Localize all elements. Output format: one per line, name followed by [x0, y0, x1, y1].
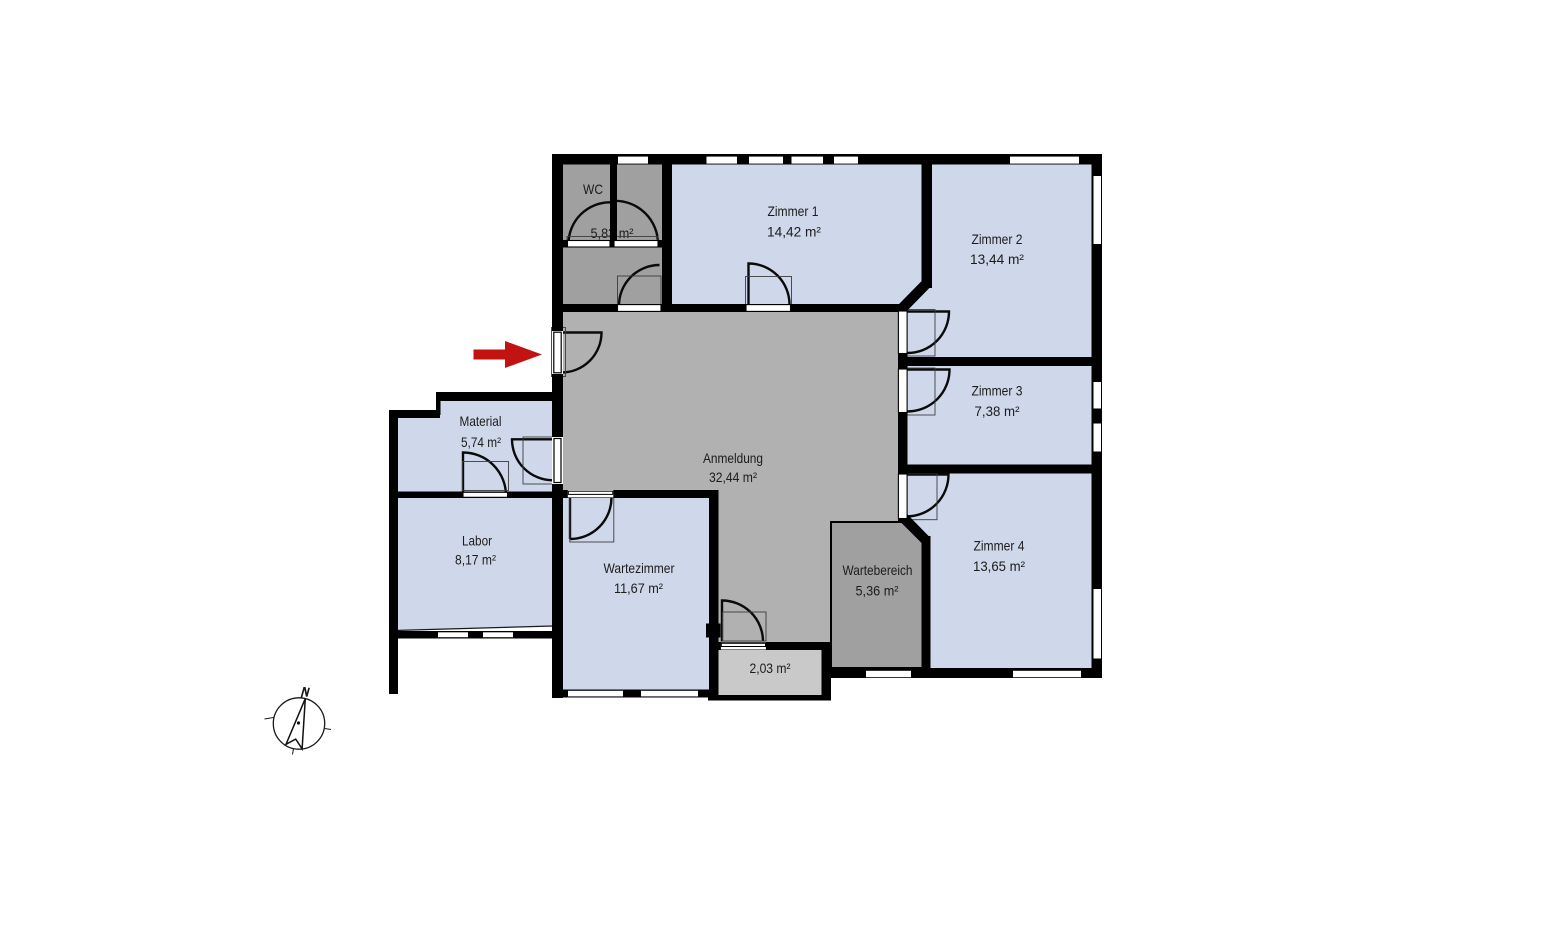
svg-text:Wartebereich: Wartebereich — [843, 563, 913, 578]
svg-text:Zimmer 2: Zimmer 2 — [972, 232, 1023, 247]
svg-text:14,42 m²: 14,42 m² — [767, 225, 821, 240]
svg-text:Zimmer 3: Zimmer 3 — [972, 384, 1023, 399]
svg-text:5,74 m²: 5,74 m² — [461, 435, 501, 450]
svg-text:13,44 m²: 13,44 m² — [970, 252, 1024, 267]
svg-text:Wartezimmer: Wartezimmer — [604, 561, 675, 576]
svg-text:2,03 m²: 2,03 m² — [750, 661, 791, 676]
svg-text:8,17 m²: 8,17 m² — [455, 553, 496, 568]
svg-text:Labor: Labor — [462, 534, 492, 549]
svg-text:Zimmer 1: Zimmer 1 — [768, 204, 819, 219]
svg-text:Material: Material — [460, 414, 502, 429]
svg-text:13,65 m²: 13,65 m² — [973, 559, 1025, 574]
svg-text:Anmeldung: Anmeldung — [703, 451, 763, 466]
svg-text:32,44 m²: 32,44 m² — [709, 470, 757, 485]
svg-text:11,67 m²: 11,67 m² — [614, 581, 663, 596]
svg-text:WC: WC — [583, 182, 603, 197]
svg-text:5,36 m²: 5,36 m² — [856, 584, 899, 599]
svg-text:Zimmer 4: Zimmer 4 — [974, 539, 1025, 554]
svg-text:7,38 m²: 7,38 m² — [975, 404, 1020, 419]
